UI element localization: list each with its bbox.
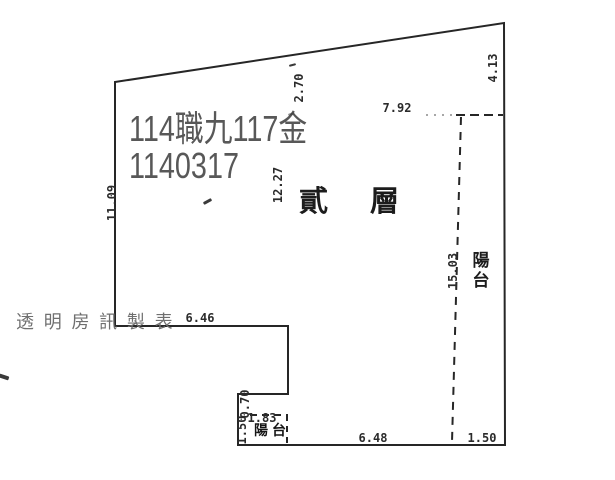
- floor-plan-drawing: [0, 0, 615, 480]
- right-balcony-char1: 陽: [471, 253, 491, 270]
- floor-level-label: 貳 層: [299, 187, 399, 216]
- small-balcony-label: 陽台: [254, 424, 290, 438]
- unit-outline: [115, 23, 505, 445]
- floor-level-char1: 貳: [299, 187, 328, 216]
- right-balcony-char2: 台: [471, 273, 491, 290]
- dim-right-top: 4.13: [487, 54, 499, 83]
- watermark-text: 透 明 房 訊 製 表: [16, 314, 175, 332]
- registry-stamp: 114職九117金 1140317: [129, 110, 352, 184]
- dim-top-edge: 2.70: [293, 74, 305, 103]
- dim-step-width: 6.46: [186, 312, 215, 324]
- dim-balcony-length: 15.03: [447, 253, 459, 289]
- dim-small-balcony-depth: 1.50: [236, 416, 248, 445]
- dim-small-balcony-width: 1.83: [248, 412, 277, 424]
- dim-upper-width: 7.92: [383, 102, 412, 114]
- floor-plan-document: 114職九117金 1140317 貳 層 陽 台 陽台 透 明 房 訊 製 表…: [0, 0, 615, 480]
- dim-left-height: 11.09: [106, 185, 118, 221]
- dim-interior-height: 12.27: [272, 167, 284, 203]
- right-balcony-label: 陽 台: [471, 253, 491, 293]
- floor-level-char2: 層: [370, 187, 399, 216]
- dim-balcony-width: 1.50: [468, 432, 497, 444]
- dim-bottom-width: 6.48: [359, 432, 388, 444]
- stamp-line1: 114職九117金: [129, 110, 307, 147]
